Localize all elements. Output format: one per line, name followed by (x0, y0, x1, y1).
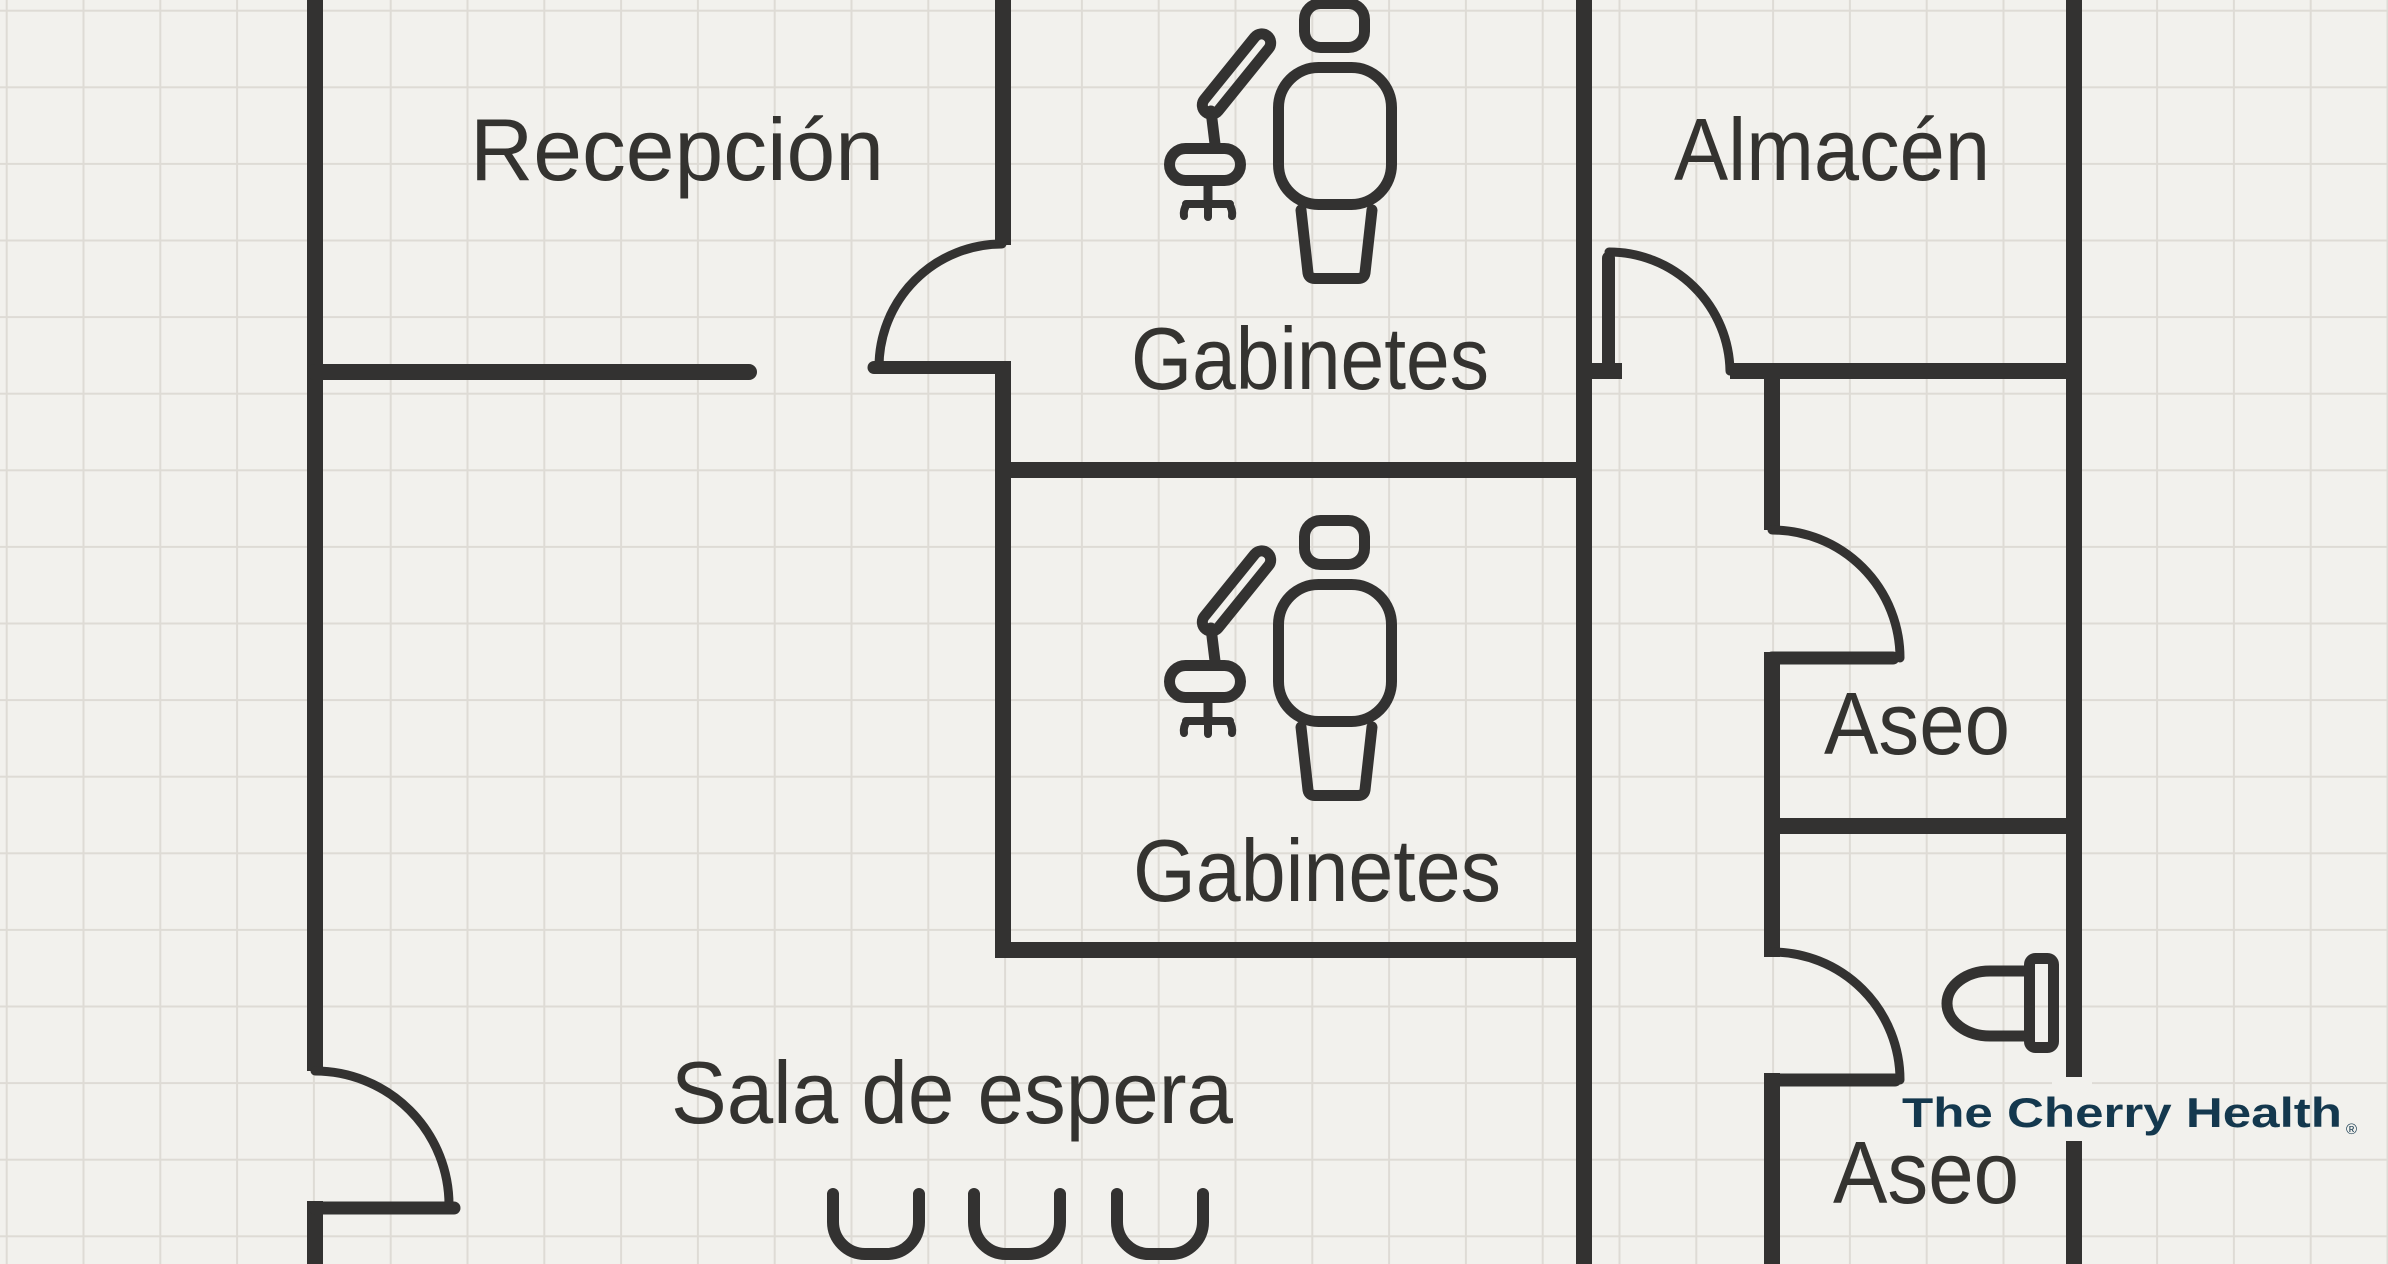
svg-text:The Cherry Health: The Cherry Health (1902, 1089, 2342, 1136)
svg-text:Aseo: Aseo (1824, 674, 2010, 773)
svg-text:Almacén: Almacén (1674, 100, 1990, 199)
svg-text:®: ® (2346, 1121, 2357, 1138)
svg-text:Aseo: Aseo (1833, 1123, 2019, 1222)
svg-text:Gabinetes: Gabinetes (1131, 309, 1489, 408)
svg-text:Gabinetes: Gabinetes (1133, 821, 1501, 920)
svg-text:Recepción: Recepción (470, 100, 884, 199)
svg-text:Sala de espera: Sala de espera (671, 1043, 1233, 1142)
